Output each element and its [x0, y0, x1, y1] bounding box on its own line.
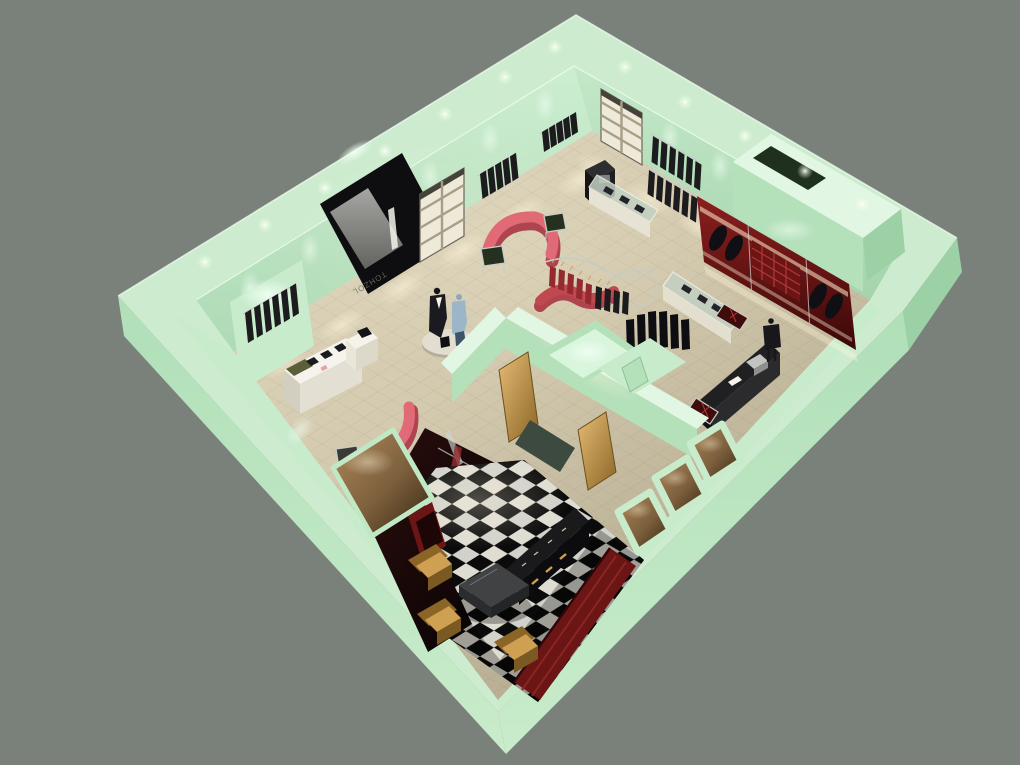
- mannequin-blue-head: [456, 294, 462, 300]
- spotlight: [547, 39, 563, 55]
- cubicle-glow: [696, 435, 724, 453]
- basket-top: [544, 213, 566, 232]
- spotlight: [257, 217, 273, 233]
- cubicle-glow: [661, 469, 689, 487]
- mannequin-head: [768, 318, 774, 324]
- spotlight: [617, 59, 633, 75]
- cubicle-glow: [624, 501, 652, 519]
- spotlight: [854, 196, 870, 212]
- spotlight: [497, 69, 513, 85]
- spotlight: [317, 180, 333, 196]
- spotlight: [197, 254, 213, 270]
- cubicle-glow: [566, 340, 610, 364]
- render-canvas: TOHZOL: [0, 0, 1020, 765]
- platform-item: [440, 336, 450, 348]
- spotlight: [677, 94, 693, 110]
- mannequin-jacket: [763, 324, 781, 350]
- wall-glow: [710, 149, 730, 183]
- spotlight: [737, 128, 753, 144]
- store-render: TOHZOL: [0, 0, 1020, 765]
- basket-top: [481, 246, 505, 266]
- spotlight: [437, 106, 453, 122]
- storage-glow: [764, 218, 816, 242]
- room-glow: [342, 448, 394, 476]
- wall-glow: [535, 88, 555, 122]
- mannequin-dark-head: [434, 288, 440, 294]
- spotlight: [377, 143, 393, 159]
- spotlight: [797, 163, 813, 179]
